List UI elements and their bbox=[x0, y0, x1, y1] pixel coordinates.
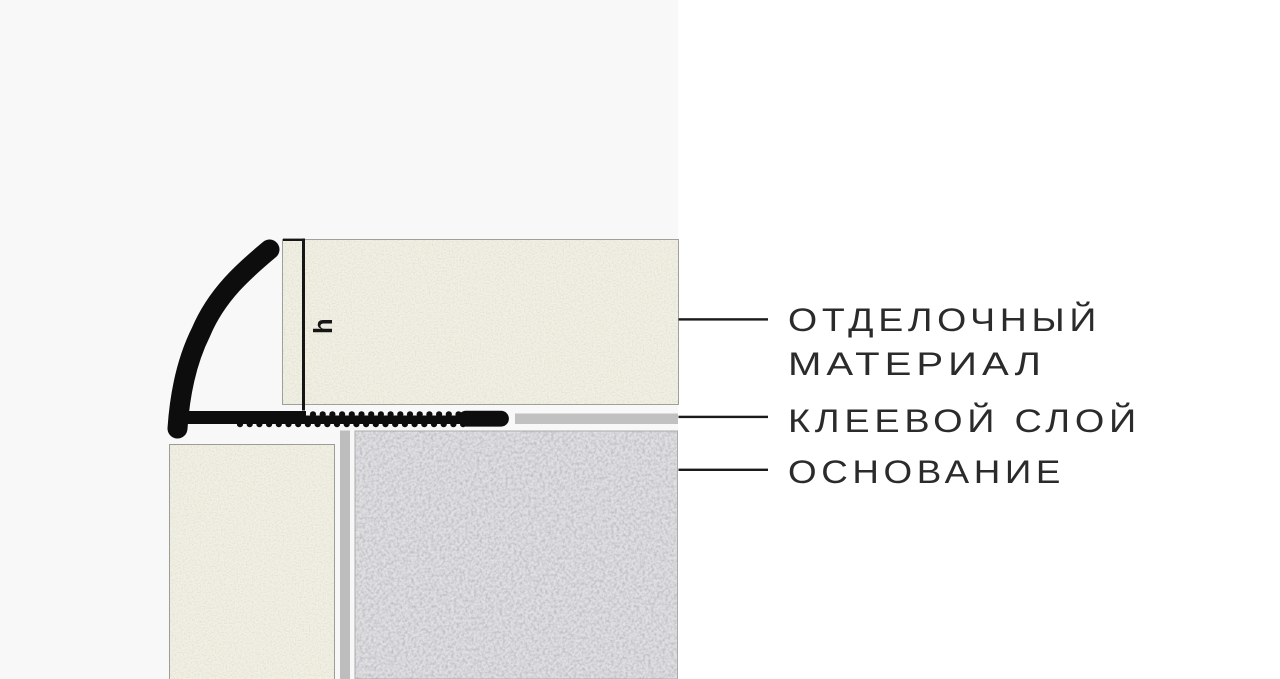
svg-text:ОТДЕЛОЧНЫЙ: ОТДЕЛОЧНЫЙ bbox=[788, 302, 1101, 338]
svg-text:КЛЕЕВОЙ СЛОЙ: КЛЕЕВОЙ СЛОЙ bbox=[788, 403, 1141, 439]
svg-text:h: h bbox=[310, 318, 338, 334]
svg-text:ОСНОВАНИЕ: ОСНОВАНИЕ bbox=[788, 454, 1065, 490]
svg-text:МАТЕРИАЛ: МАТЕРИАЛ bbox=[788, 346, 1046, 382]
